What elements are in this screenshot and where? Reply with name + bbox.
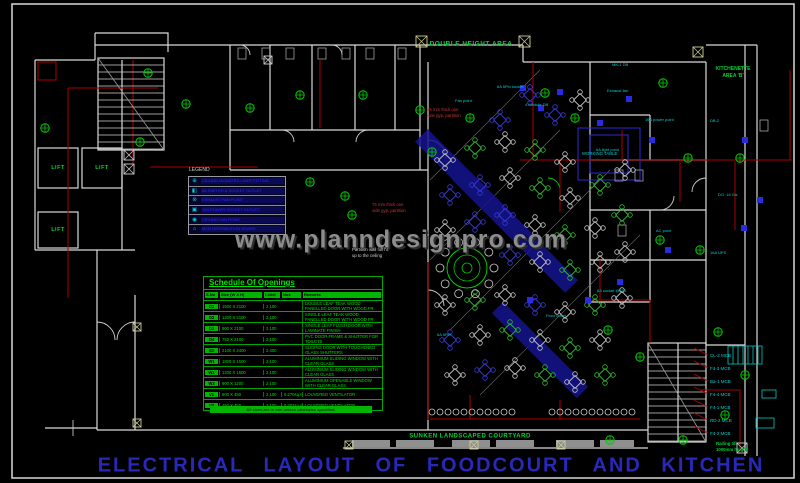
annotation: 6A light point	[596, 147, 619, 152]
legend-symbol-icon: ◉	[189, 216, 200, 224]
lift-label-1: LIFT	[51, 165, 65, 171]
circuit-label: F4-3 MCB	[710, 366, 731, 371]
schedule-row: W21200 X 15002.100ALUMINIUM SLIDING WIND…	[204, 366, 382, 377]
annotation: Fan point	[455, 98, 472, 103]
drawing-title: ELECTRICAL LAYOUT OF FOODCOURT AND KITCH…	[98, 455, 765, 478]
annotation: 6A 5Pin socket	[497, 84, 523, 89]
schedule-footer-note: All sizes are in mm unless otherwise spe…	[210, 406, 372, 413]
electrical-legend-table: ⊕CEILING MOUNTED LIGHT FITTING◧5A SWITCH…	[188, 176, 286, 235]
legend-row: ◧5A SWITCH & SOCKET OUTLET	[189, 186, 285, 196]
annotation: AC point	[656, 228, 671, 233]
courtyard-label: SUNKEN LANDSCAPED COURTYARD	[409, 434, 531, 441]
annotation: DO. 16 Ga.	[718, 192, 738, 197]
legend-symbol-icon: ◧	[189, 187, 200, 195]
annotation: 16A UPS	[710, 250, 726, 255]
legend-row: ⊗EXHAUST FAN POINT	[189, 195, 285, 205]
legend-row: ⊕CEILING MOUNTED LIGHT FITTING	[189, 177, 285, 186]
circuit-label: F4-1 MCB	[710, 405, 731, 410]
schedule-row: W3900 X 12002.100ALUMINIUM OPENABLE WIND…	[204, 377, 382, 388]
schedule-header-row: S.NoSize (W X H)LintelNosRemarks	[204, 289, 382, 300]
blue-seating-bands	[415, 129, 588, 398]
annotation: 4 Module DB	[525, 102, 548, 107]
wall-note-b: up to the ceiling	[352, 254, 382, 259]
schedule-row: SD2100 X 24002.400SLIDING DOOR WITH TOUG…	[204, 344, 382, 355]
schedule-row: D3900 X 21002.100SINGLE LEAF FLUSH DOOR …	[204, 322, 382, 333]
circuit-label: RD-2 MCB	[710, 418, 732, 423]
schedule-row: D21200 X 21002.100SINGLE LEAF TEAK WOOD …	[204, 311, 382, 322]
cyan-shaft-hatch	[728, 346, 776, 428]
annotation: MK-1 DB	[612, 62, 628, 67]
schedule-header-cell: S.No	[205, 292, 218, 298]
schedule-header-cell: Nos	[282, 292, 301, 298]
kitchenette-label-line1: KITCHENETTE	[716, 67, 751, 73]
schedule-header-cell: Lintel	[264, 292, 280, 298]
annotation: Floor outlet	[546, 313, 566, 318]
annotation: DB-2	[710, 118, 719, 123]
circuit-label: F4-4 MCB	[710, 392, 731, 397]
partition-note-2b: side gyp. partition	[372, 209, 406, 214]
railing-note-line2: 1000mm height	[716, 448, 747, 453]
courtyard-planters	[352, 440, 634, 447]
schedule-header-cell: Remarks	[303, 292, 381, 298]
circuit-label: F4-2 MCB	[710, 431, 731, 436]
schedule-row: W11800 X 15002.100ALUMINIUM SLIDING WIND…	[204, 355, 382, 366]
schedule-row: D11500 X 21002.100DOUBLE LEAF TEAK WOOD …	[204, 300, 382, 311]
partition-note-1b: side gyp. partition	[427, 114, 461, 119]
legend-symbol-icon: ▣	[189, 206, 200, 214]
annotation: 6A 5Pin	[437, 332, 451, 337]
annotation: 16A power point	[645, 117, 674, 122]
lift-label-3: LIFT	[51, 227, 65, 233]
kitchenette-label-line2: AREA 'B'	[722, 74, 743, 80]
double-height-area-label: DOUBLE HEIGHT AREA	[430, 40, 513, 47]
schedule-row: V1600 X 4502.1000.270sq.mLOUVERED VENTIL…	[204, 388, 382, 399]
legend-symbol-icon: ⊗	[189, 196, 200, 204]
annotation: Exhaust fan	[607, 88, 628, 93]
legend-title: LEGEND	[189, 168, 210, 174]
schedule-title: Schedule Of Openings	[204, 277, 382, 289]
legend-symbol-icon: ⊕	[189, 177, 200, 185]
legend-row: ◉CEILING FAN POINT	[189, 214, 285, 224]
circuit-label: Ba-1 MCB	[710, 379, 731, 384]
schedule-row: D4750 X 21002.100PVC DOOR FRAME & SHUTTE…	[204, 333, 382, 344]
legend-row: ▣15A POWER SOCKET OUTLET	[189, 205, 285, 215]
annotation: 6A socket @450	[597, 288, 626, 293]
legend-symbol-icon: ⌂	[189, 225, 200, 233]
counter-stools	[429, 409, 635, 415]
working-table-label: WORKING TABLE	[582, 152, 617, 157]
cad-drawing-canvas: www.planndesignpro.com ELECTRICAL LAYOUT…	[0, 0, 800, 483]
circuit-label: CL-2 MCB	[710, 353, 731, 358]
schedule-header-cell: Size (W X H)	[220, 292, 262, 298]
schedule-of-openings-table: Schedule Of Openings S.NoSize (W X H)Lin…	[203, 276, 383, 411]
wiring-red	[38, 60, 792, 452]
lift-label-2: LIFT	[95, 165, 109, 171]
legend-row: ⌂MCB DISTRIBUTION BOARD	[189, 224, 285, 234]
